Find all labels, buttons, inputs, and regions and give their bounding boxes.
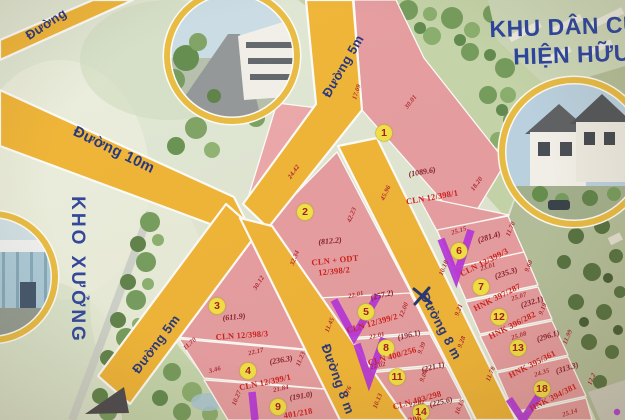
checkmark-plot-9 bbox=[252, 392, 255, 420]
map-graphics bbox=[0, 0, 625, 420]
subdivision-map-photo: KHU DÂN CƯ HIỆN HỮU KHO XƯỞNG Đường Đườn… bbox=[0, 0, 625, 420]
purple-fleck bbox=[614, 409, 620, 415]
